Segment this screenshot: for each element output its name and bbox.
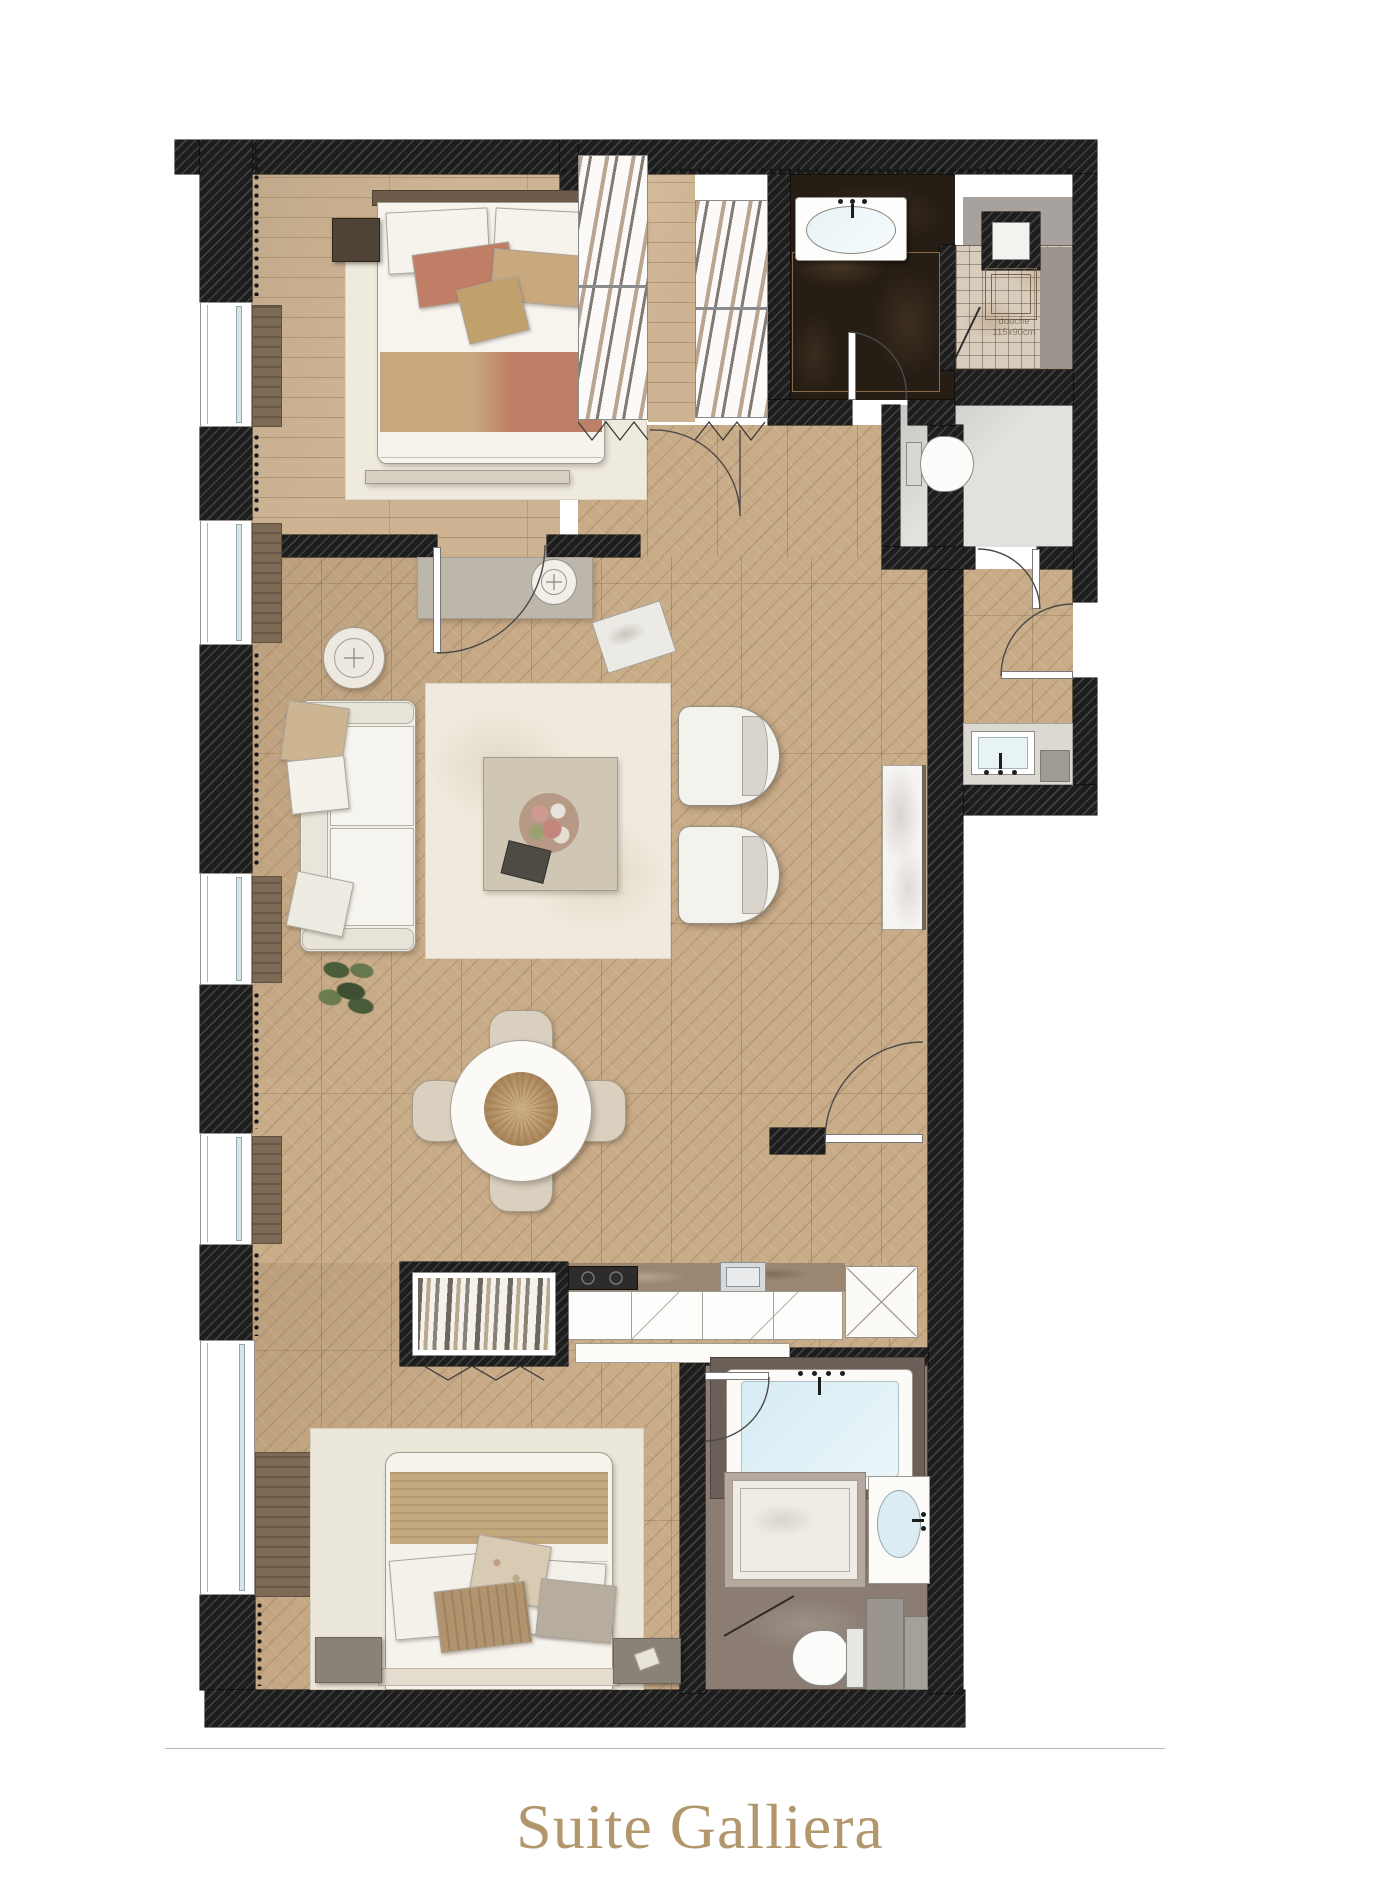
bathroom2-door-leaf xyxy=(705,1372,769,1380)
bathroom2-faucet-stem xyxy=(912,1519,924,1522)
bathtub1-faucet-stem xyxy=(851,204,854,218)
bed2-pillow-gray xyxy=(535,1578,617,1644)
wall-right-lower xyxy=(1073,678,1097,790)
wc-toilet-bowl xyxy=(920,436,974,492)
bookshelf-books xyxy=(418,1278,550,1350)
window-3 xyxy=(200,873,252,985)
floor-plan-page: douche 115x90cm xyxy=(0,0,1400,1900)
bathroom1-floor-inlay xyxy=(792,252,940,392)
wall-wc-bottom-left xyxy=(882,547,975,569)
bathtub1-faucet-dot-1 xyxy=(838,199,843,204)
side-table-ring xyxy=(334,638,374,678)
bathtub2-faucet-stem xyxy=(818,1377,821,1395)
bed1-nightstand-left xyxy=(332,218,380,262)
bathtub2-faucet-dot-1 xyxy=(798,1371,803,1376)
wardrobe-left-divider xyxy=(578,285,648,288)
curtain-box-4 xyxy=(252,1136,282,1244)
entry-door-leaf xyxy=(1001,671,1073,679)
wall-entry-bottom xyxy=(963,785,1097,815)
window-2 xyxy=(200,520,252,645)
sofa-pillow-white xyxy=(286,755,349,815)
wall-bathroom2-left xyxy=(680,1348,705,1693)
bed1-blanket-band xyxy=(380,352,602,434)
bathroom2-faucet-dot-2 xyxy=(921,1526,926,1531)
shower1-dimension-label: douche 115x90cm xyxy=(958,316,1070,346)
bathroom2-toilet-tank xyxy=(846,1628,864,1688)
dressing-walkway-floor xyxy=(648,174,695,422)
shower2-tray-inner xyxy=(740,1488,850,1572)
entry-vanity-basin xyxy=(978,737,1028,769)
wall-corridor-door-stub xyxy=(770,1128,825,1154)
kitchen-sink-basin xyxy=(726,1267,760,1287)
insulation-dots-2 xyxy=(252,433,262,516)
bathtub2-faucet-dot-4 xyxy=(840,1371,845,1376)
insulation-dots-4 xyxy=(252,991,262,1129)
dining-centerpiece xyxy=(484,1072,558,1146)
wall-left-4 xyxy=(200,985,252,1133)
armchair-2-back xyxy=(742,836,768,914)
shower1-label-line2: 115x90cm xyxy=(992,327,1035,338)
bed1-blanket-foot xyxy=(380,432,602,458)
wall-bottom xyxy=(205,1690,965,1727)
wall-left-1 xyxy=(200,140,252,302)
curtain-box-3 xyxy=(252,876,282,983)
window-5 xyxy=(200,1340,255,1595)
wall-corridor-right xyxy=(928,569,963,1693)
bed2-blanket-band xyxy=(390,1472,608,1544)
window-4 xyxy=(200,1133,252,1245)
wall-left-2 xyxy=(200,427,252,520)
bathroom2-sink-basin xyxy=(877,1490,921,1558)
wc-door-leaf xyxy=(1032,549,1040,609)
bathroom2-faucet-dot-1 xyxy=(921,1512,926,1517)
wall-shower1-left xyxy=(940,245,955,370)
entry-faucet-dot-1 xyxy=(984,770,989,775)
wall-bathroom1-left xyxy=(768,174,790,400)
footer-divider-line xyxy=(165,1748,1165,1749)
bathtub2-water xyxy=(741,1381,899,1477)
bathroom1-door-leaf xyxy=(848,332,856,400)
shaft-niche xyxy=(992,222,1030,260)
bed2-headboard xyxy=(378,1668,620,1686)
sofa-pillow-marble xyxy=(286,871,354,938)
shower1-drain-inner xyxy=(991,274,1031,314)
entry-side-cabinet xyxy=(1040,750,1070,782)
wall-left-6 xyxy=(200,1595,255,1690)
shower1-label-line1: douche xyxy=(998,316,1029,327)
corridor-door-leaf xyxy=(825,1134,923,1143)
cooktop xyxy=(566,1266,638,1290)
entry-faucet-dot-2 xyxy=(998,770,1003,775)
wall-left-3 xyxy=(200,645,252,873)
bed2-pillow-tan xyxy=(434,1581,533,1654)
wall-bedroom1-right xyxy=(547,535,640,557)
bathroom2-toilet-bowl xyxy=(792,1630,850,1686)
bathroom2-partition xyxy=(866,1598,904,1690)
entry-faucet-dot-3 xyxy=(1012,770,1017,775)
curtain-box-2 xyxy=(252,523,282,643)
bedroom1-door-leaf xyxy=(433,547,441,653)
shower1-side-ledge xyxy=(1040,247,1073,368)
bed2-nightstand-left xyxy=(315,1637,382,1683)
bed1-bench xyxy=(365,470,570,484)
desk-tray-ring xyxy=(541,569,567,595)
kitchen-base-cabinets xyxy=(560,1291,843,1340)
curtain-box-1 xyxy=(252,305,282,427)
bathtub1-faucet-dot-3 xyxy=(862,199,867,204)
page-title: Suite Galliera xyxy=(250,1790,1150,1880)
wall-bathroom1-bottom-right xyxy=(908,400,955,425)
wardrobe-right-divider xyxy=(695,307,768,310)
marble-console xyxy=(882,765,926,930)
wall-wc-left xyxy=(882,405,900,547)
wall-shower1-bottom xyxy=(955,370,1073,405)
insulation-dots-5 xyxy=(252,1251,262,1336)
bathtub2-faucet-dot-3 xyxy=(826,1371,831,1376)
wall-left-5 xyxy=(200,1245,252,1340)
insulation-dots-6 xyxy=(255,1601,265,1686)
window-1 xyxy=(200,302,252,427)
bathroom2-side-cabinet xyxy=(904,1616,928,1690)
insulation-dots-3 xyxy=(252,651,262,869)
wall-bathroom1-bottom-left xyxy=(768,400,852,425)
entry-faucet-stem xyxy=(999,753,1002,769)
wall-wc-bottom-right xyxy=(1037,547,1073,569)
bathtub2-faucet-dot-2 xyxy=(812,1371,817,1376)
armchair-1-back xyxy=(742,716,768,796)
wall-right-upper xyxy=(1073,174,1097,602)
marble-console-edge xyxy=(922,765,926,930)
insulation-dots-1 xyxy=(252,146,262,296)
kitchen-tall-cabinet xyxy=(845,1266,918,1338)
